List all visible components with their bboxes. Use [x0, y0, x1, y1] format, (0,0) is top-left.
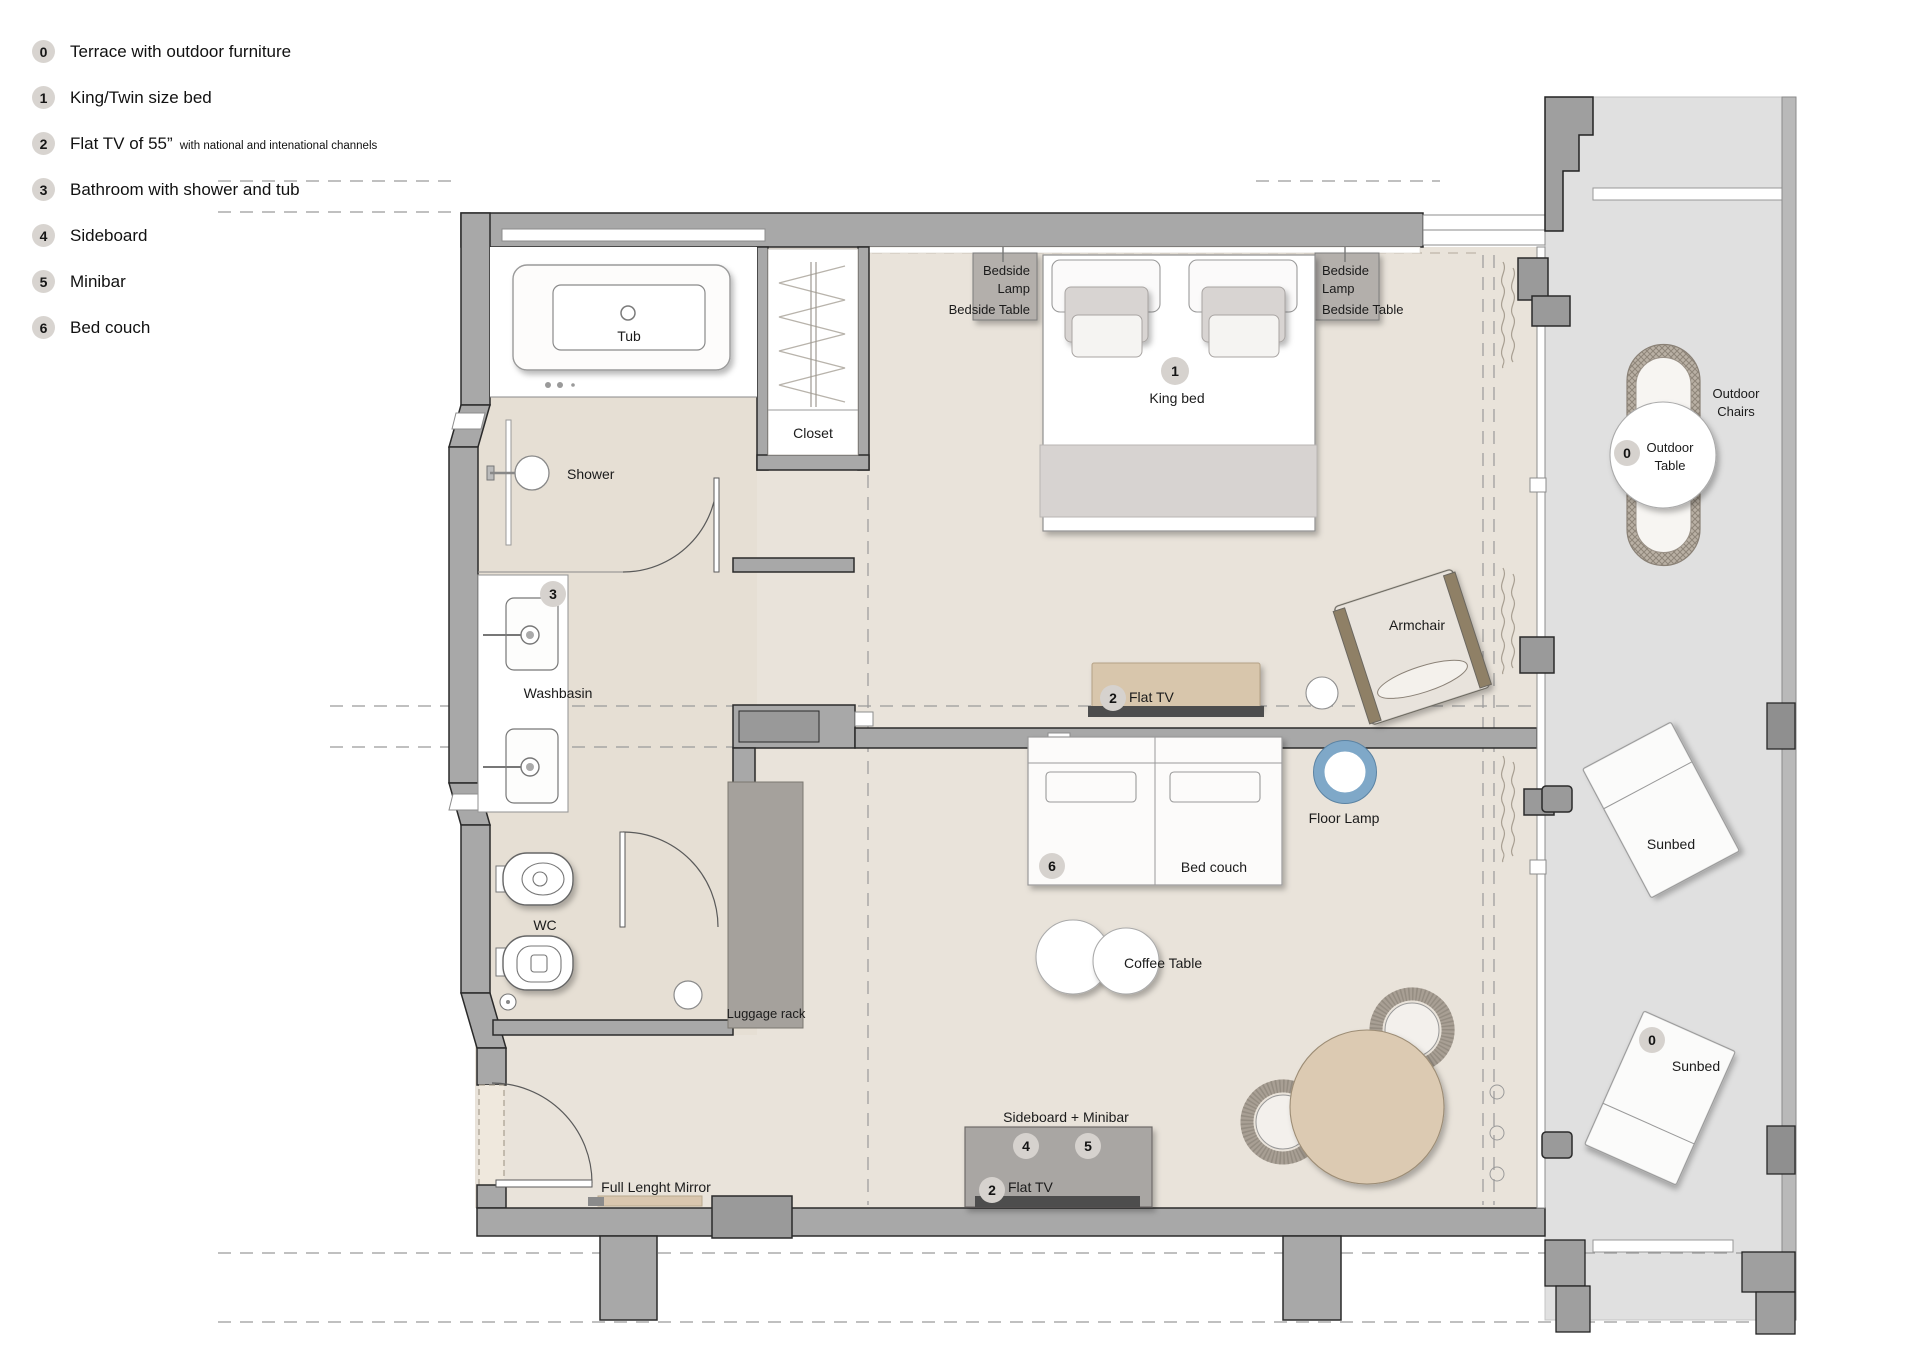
badge-0-table-num: 0: [1623, 445, 1631, 461]
legend-label-0: Terrace with outdoor furniture: [70, 42, 291, 62]
dining-table: [1290, 1030, 1444, 1184]
bedside-lamp-left-1: Bedside: [983, 263, 1030, 278]
badge-4-num: 4: [1022, 1138, 1030, 1154]
tub-drain: [621, 306, 635, 320]
valve-dot: [506, 1000, 510, 1004]
entry-door-leaf: [496, 1180, 592, 1187]
legend-item-0: 0 Terrace with outdoor furniture: [32, 40, 377, 63]
legend-badge-3: 3: [32, 178, 55, 201]
bottom-wall-pillar: [712, 1196, 792, 1238]
bidet-drain: [533, 872, 547, 886]
badge-2-bedroom-num: 2: [1109, 690, 1117, 706]
tub-control-dot: [571, 383, 575, 387]
legend-label-5: Minibar: [70, 272, 126, 292]
left-window-2: [449, 794, 482, 810]
legend-badge-2: 2: [32, 132, 55, 155]
badge-5-num: 5: [1084, 1138, 1092, 1154]
shower-label: Shower: [567, 466, 615, 482]
tub-label: Tub: [617, 328, 641, 344]
entry-jamb-bottom: [477, 1185, 506, 1208]
left-wall-top: [461, 213, 490, 405]
door-stop: [674, 981, 702, 1009]
pillow: [1072, 315, 1142, 357]
badge-3-num: 3: [549, 586, 557, 602]
glazing-connector-2: [1530, 860, 1546, 874]
closet: Closet: [768, 249, 858, 455]
legend-item-4: 4 Sideboard: [32, 224, 377, 247]
glazing-connector-1: [1530, 478, 1546, 492]
terrace-mullion-2: [1542, 1132, 1572, 1158]
legend-item-1: 1 King/Twin size bed: [32, 86, 377, 109]
sunbed-top-label: Sunbed: [1647, 836, 1695, 852]
terrace-pillar-br-a: [1742, 1252, 1795, 1292]
coffee-table-label: Coffee Table: [1124, 955, 1202, 971]
outdoor-table-label-1: Outdoor: [1647, 440, 1695, 455]
terrace-rail-bottom: [1593, 1240, 1733, 1252]
rail-post-2: [1767, 1126, 1795, 1174]
legend-badge-1: 1: [32, 86, 55, 109]
rail-post-1: [1767, 703, 1795, 749]
bedside-table-right-label: Bedside Table: [1322, 302, 1403, 317]
luggage-wall: [733, 748, 755, 784]
legend-item-3: 3 Bathroom with shower and tub: [32, 178, 377, 201]
top-wall-window: [502, 229, 765, 241]
badge-0-sunbed-num: 0: [1648, 1032, 1656, 1048]
terrace-pillar-br-b: [1756, 1292, 1795, 1334]
luggage-rack: [728, 782, 803, 1028]
glazing-pillar-top-a: [1518, 258, 1548, 300]
legend-label-6: Bed couch: [70, 318, 150, 338]
bath-corridor-wall: [733, 558, 854, 572]
door-jamb-detail: [855, 712, 873, 726]
side-table: [1306, 677, 1338, 709]
glazing-pillar-top-b: [1532, 296, 1570, 326]
legend-badge-5: 5: [32, 270, 55, 293]
legend-label-4: Sideboard: [70, 226, 148, 246]
bed-blanket: [1040, 445, 1317, 517]
tub-control-dot: [545, 382, 551, 388]
entry-door-opening: [479, 1085, 504, 1185]
glazing-pillar-mid-a: [1520, 637, 1554, 673]
wc-label: WC: [533, 917, 556, 933]
terrace-glazing: [1537, 247, 1545, 1208]
left-wall-lower: [461, 825, 490, 993]
legend-label-2: Flat TV of 55”: [70, 134, 173, 154]
outdoor-chairs-label-1: Outdoor: [1713, 386, 1761, 401]
bed-couch-label: Bed couch: [1181, 859, 1247, 875]
terrace-pillar-bl-a: [1545, 1240, 1585, 1286]
partition-stub-inner: [739, 711, 819, 742]
bathroom-bottom-wall: [493, 1020, 733, 1035]
entry-jamb-top: [477, 1048, 506, 1085]
closet-wall-right: [858, 247, 869, 470]
washbasin-label: Washbasin: [524, 685, 593, 701]
king-bed-label: King bed: [1149, 390, 1204, 406]
legend-item-6: 6 Bed couch: [32, 316, 377, 339]
outdoor-table-label-2: Table: [1654, 458, 1685, 473]
shower-head: [515, 456, 549, 490]
legend-badge-4: 4: [32, 224, 55, 247]
bathroom-door-leaf: [620, 832, 625, 927]
legend-note-2: with national and intenational channels: [180, 136, 378, 152]
luggage-rack-label: Luggage rack: [727, 1006, 806, 1021]
pillow: [1209, 315, 1279, 357]
terrace-pillar-bl-b: [1556, 1286, 1590, 1332]
bedside-lamp-right-2: Lamp: [1322, 281, 1355, 296]
bottom-pillar-stub-1: [600, 1236, 657, 1320]
badge-2-living-num: 2: [988, 1182, 996, 1198]
left-wall-mid: [449, 447, 478, 783]
bedside-lamp-left-2: Lamp: [997, 281, 1030, 296]
flat-tv-bedroom-label: Flat TV: [1129, 689, 1175, 705]
legend-item-2: 2 Flat TV of 55” with national and inten…: [32, 132, 377, 155]
floor-lamp: [1319, 746, 1371, 798]
terrace-rail-top: [1593, 188, 1782, 200]
closet-wall-left: [757, 247, 768, 470]
outdoor-chairs-label-2: Chairs: [1717, 404, 1755, 419]
mirror-label: Full Lenght Mirror: [601, 1179, 711, 1195]
badge-1-num: 1: [1171, 363, 1179, 379]
floor-lamp-label: Floor Lamp: [1309, 810, 1380, 826]
wall-inner-face: [869, 247, 1420, 253]
tub-control-dot: [557, 382, 563, 388]
flat-tv-living-label: Flat TV: [1008, 1179, 1054, 1195]
closet-label: Closet: [793, 425, 833, 441]
badge-6-num: 6: [1048, 858, 1056, 874]
legend: 0 Terrace with outdoor furniture 1 King/…: [32, 40, 377, 362]
legend-badge-0: 0: [32, 40, 55, 63]
left-window-1: [452, 413, 485, 429]
sideboard-label: Sideboard + Minibar: [1003, 1109, 1129, 1125]
legend-badge-6: 6: [32, 316, 55, 339]
bottom-wall: [477, 1208, 1545, 1236]
armchair-label: Armchair: [1389, 617, 1445, 633]
legend-label-1: King/Twin size bed: [70, 88, 212, 108]
floorplan-page: Tub Shower 3 Washbasin WC: [0, 0, 1920, 1357]
legend-item-5: 5 Minibar: [32, 270, 377, 293]
sunbed-bottom-label: Sunbed: [1672, 1058, 1720, 1074]
shower-door-leaf: [714, 478, 719, 572]
bedside-table-left-label: Bedside Table: [949, 302, 1030, 317]
bottom-pillar-stub-2: [1283, 1236, 1341, 1320]
full-length-mirror: [598, 1196, 702, 1206]
shower-glass: [506, 420, 511, 545]
mirror-shadow: [588, 1197, 604, 1206]
legend-label-3: Bathroom with shower and tub: [70, 180, 300, 200]
closet-wall-bottom: [757, 455, 869, 470]
bedside-lamp-right-1: Bedside: [1322, 263, 1369, 278]
terrace-mullion-1: [1542, 786, 1572, 812]
faucet-2-center: [526, 763, 534, 771]
faucet-1-center: [526, 631, 534, 639]
